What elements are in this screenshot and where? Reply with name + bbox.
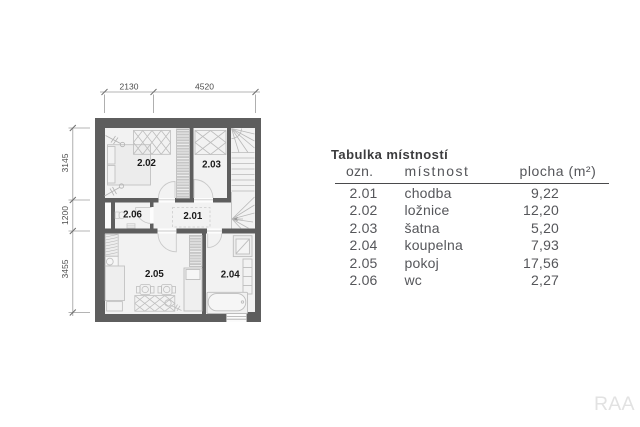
svg-text:1200: 1200 xyxy=(60,206,70,225)
svg-text:4520: 4520 xyxy=(195,82,214,92)
svg-text:2.06: 2.06 xyxy=(123,210,142,221)
svg-text:2.03: 2.03 xyxy=(202,160,221,171)
svg-text:2.04: 2.04 xyxy=(221,269,240,280)
svg-text:2.02: 2.02 xyxy=(137,158,156,169)
svg-text:2.01: 2.01 xyxy=(183,211,202,222)
svg-text:2.05: 2.05 xyxy=(145,269,164,280)
svg-text:2130: 2130 xyxy=(120,82,139,92)
svg-text:3455: 3455 xyxy=(60,259,70,278)
svg-text:3145: 3145 xyxy=(60,153,70,172)
